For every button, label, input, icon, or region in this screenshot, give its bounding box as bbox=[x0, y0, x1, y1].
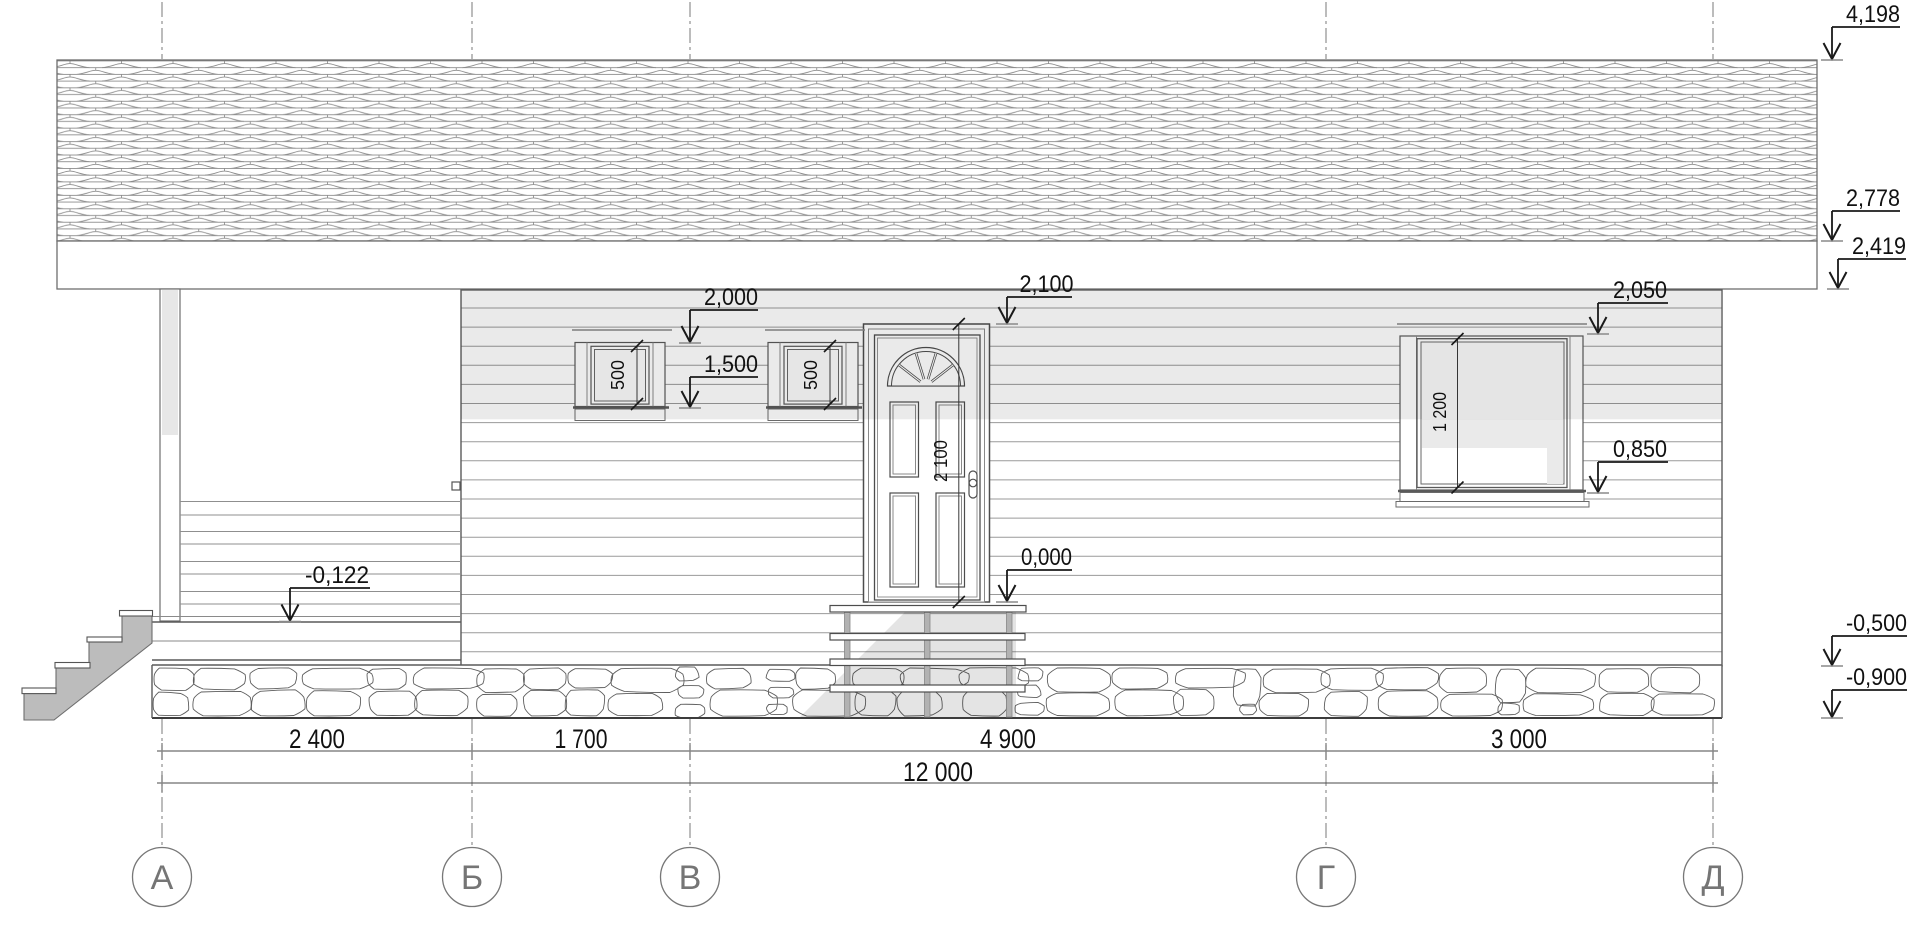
svg-text:Б: Б bbox=[461, 859, 483, 897]
svg-text:-0,500: -0,500 bbox=[1846, 610, 1907, 637]
svg-text:2,050: 2,050 bbox=[1613, 277, 1667, 304]
svg-text:4 900: 4 900 bbox=[980, 724, 1036, 754]
svg-text:-0,900: -0,900 bbox=[1846, 664, 1907, 691]
svg-text:0,000: 0,000 bbox=[1021, 544, 1072, 571]
svg-text:0,850: 0,850 bbox=[1613, 436, 1667, 463]
svg-text:4,198: 4,198 bbox=[1846, 1, 1900, 28]
svg-text:Г: Г bbox=[1317, 859, 1335, 897]
svg-text:В: В bbox=[679, 859, 702, 897]
svg-text:2,000: 2,000 bbox=[704, 284, 758, 311]
svg-text:А: А bbox=[151, 859, 174, 897]
svg-text:2 100: 2 100 bbox=[931, 440, 951, 482]
svg-text:-0,122: -0,122 bbox=[305, 562, 369, 589]
svg-text:12 000: 12 000 bbox=[903, 757, 973, 787]
svg-text:1,500: 1,500 bbox=[704, 351, 758, 378]
svg-text:2,100: 2,100 bbox=[1020, 271, 1074, 298]
svg-text:2 400: 2 400 bbox=[289, 724, 345, 754]
svg-text:1 700: 1 700 bbox=[555, 724, 608, 754]
svg-text:2,419: 2,419 bbox=[1852, 233, 1906, 260]
svg-text:Д: Д bbox=[1701, 859, 1724, 897]
svg-text:3 000: 3 000 bbox=[1491, 724, 1547, 754]
svg-text:2,778: 2,778 bbox=[1846, 185, 1900, 212]
